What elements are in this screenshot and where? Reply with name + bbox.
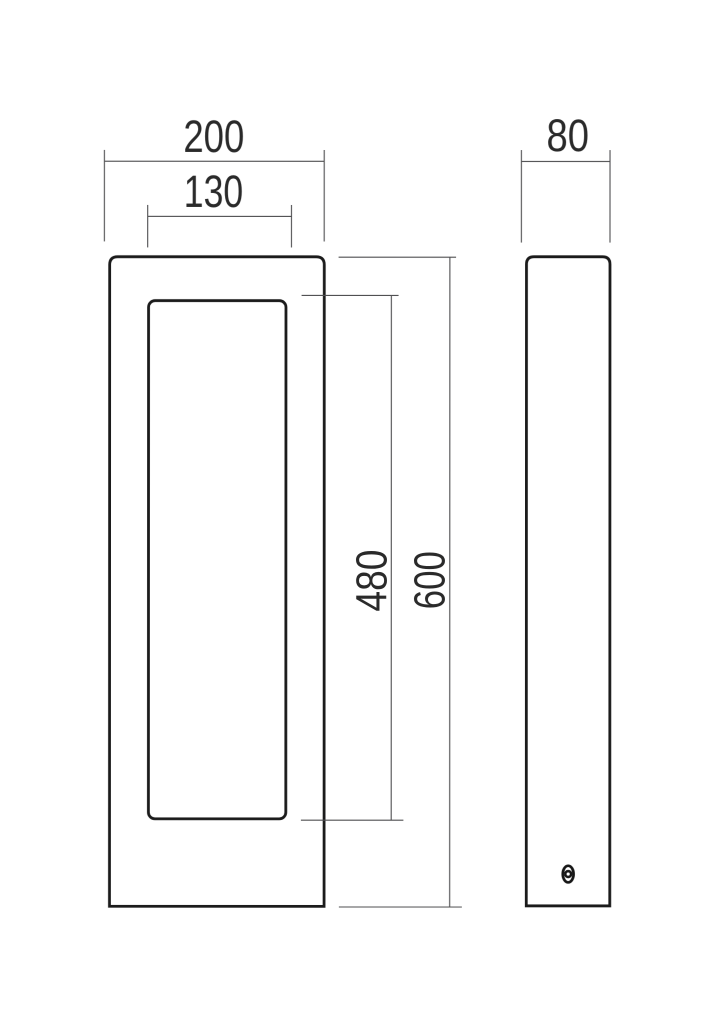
- svg-text:80: 80: [546, 110, 589, 161]
- svg-text:600: 600: [405, 551, 454, 609]
- svg-text:480: 480: [348, 550, 397, 612]
- svg-text:200: 200: [183, 111, 244, 162]
- svg-text:130: 130: [184, 166, 244, 217]
